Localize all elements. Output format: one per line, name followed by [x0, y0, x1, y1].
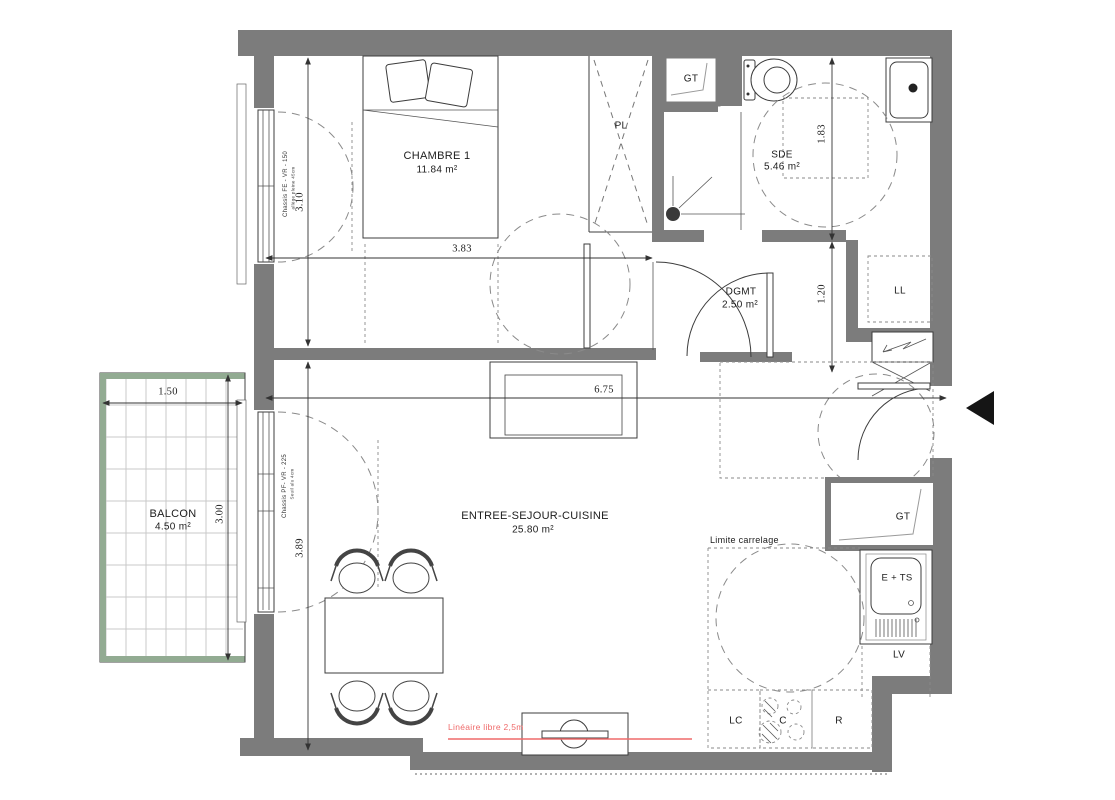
sideboard: [490, 362, 637, 438]
room-label-balcon: BALCON: [149, 508, 196, 520]
tv-unit-icon: [522, 713, 628, 755]
room-label-chambre: CHAMBRE 1: [404, 150, 471, 162]
window-sejour: [237, 400, 278, 622]
turning-circle-chambre: [490, 214, 630, 354]
room-area-sejour: 25.80 m²: [512, 525, 554, 536]
annotation-window-chambre: Chassis FE - VR - 150: [283, 151, 289, 217]
floor-plan-drawing: [0, 0, 1115, 800]
dim-sejour-width: 6.75: [594, 385, 614, 396]
room-area-balcon: 4.50 m²: [155, 522, 191, 533]
shower-drain-icon: [666, 112, 745, 230]
room-area-chambre: 11.84 m²: [416, 165, 457, 176]
fixture-label-ets: E + TS: [882, 573, 913, 584]
annotation-window-sejour-sub: Seuil alu 4cm: [290, 469, 295, 500]
room-label-sde: SDE: [771, 150, 792, 161]
room-area-sde: 5.46 m²: [764, 162, 800, 173]
dim-chambre-width: 3.83: [452, 244, 472, 255]
fixture-label-c: C: [779, 716, 787, 727]
floor-plan: CHAMBRE 1 11.84 m² SDE 5.46 m² DGMT 2.50…: [0, 0, 1115, 800]
door-leaf-chambre: [584, 244, 590, 348]
toilet-icon: [744, 59, 797, 101]
kitchen-sink-icon: [860, 550, 932, 644]
dim-sde-height: 1.83: [817, 124, 828, 144]
fixture-label-lc: LC: [729, 716, 742, 727]
dining-table-icon: [325, 551, 443, 724]
fixture-label-ll: LL: [894, 286, 906, 297]
annotation-tiling-limit: Limite carrelage: [710, 535, 779, 545]
fixture-label-gt-top: GT: [684, 74, 699, 85]
entrance-door: [858, 383, 930, 460]
fixture-label-gt-kitchen: GT: [896, 512, 911, 523]
turning-circle-entry: [818, 374, 934, 490]
room-label-dgmt: DGMT: [726, 287, 757, 298]
bed-icon: [363, 56, 498, 238]
entrance-arrow-icon: [966, 391, 994, 425]
dim-balcon-height: 3.00: [215, 504, 226, 524]
fixture-label-lv: LV: [893, 650, 905, 661]
dim-chambre-height: 3.10: [295, 192, 306, 212]
window-chambre: [237, 84, 278, 284]
room-label-sejour: ENTREE-SEJOUR-CUISINE: [461, 510, 608, 522]
closet-pl: [589, 56, 652, 232]
room-area-dgmt: 2.50 m²: [722, 300, 758, 311]
dim-balcon-width: 1.50: [158, 387, 178, 398]
fixture-label-pl: PL: [615, 121, 628, 132]
washbasin-icon: [886, 58, 932, 122]
dim-sejour-height: 3.89: [295, 538, 306, 558]
fixture-label-r: R: [835, 716, 843, 727]
turning-circle-kitchen: [716, 544, 864, 692]
duct-gt-kitchen: [828, 480, 936, 548]
annotation-free-run: Linéaire libre 2,5m: [448, 722, 524, 732]
annotation-window-sejour: Chassis PF- VR - 225: [282, 454, 288, 518]
dim-dgmt-height: 1.20: [817, 284, 828, 304]
annotation-window-chambre-sub: allège pleine 45cm: [291, 167, 296, 210]
